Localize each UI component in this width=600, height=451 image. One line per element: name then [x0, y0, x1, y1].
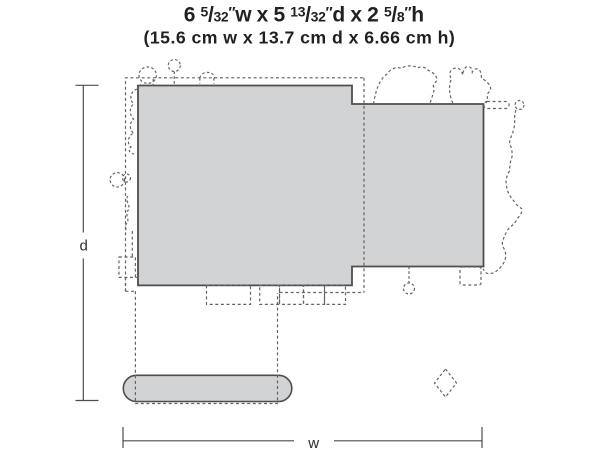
svg-text:(15.6 cm w x 13.7 cm d x 6.66: (15.6 cm w x 13.7 cm d x 6.66 cm h) [144, 28, 456, 48]
svg-text:w: w [307, 435, 319, 451]
svg-text:d: d [79, 238, 87, 255]
svg-text:6 5/32″w x 5 13/32″d x 2 5/8″h: 6 5/32″w x 5 13/32″d x 2 5/8″h [184, 3, 424, 26]
